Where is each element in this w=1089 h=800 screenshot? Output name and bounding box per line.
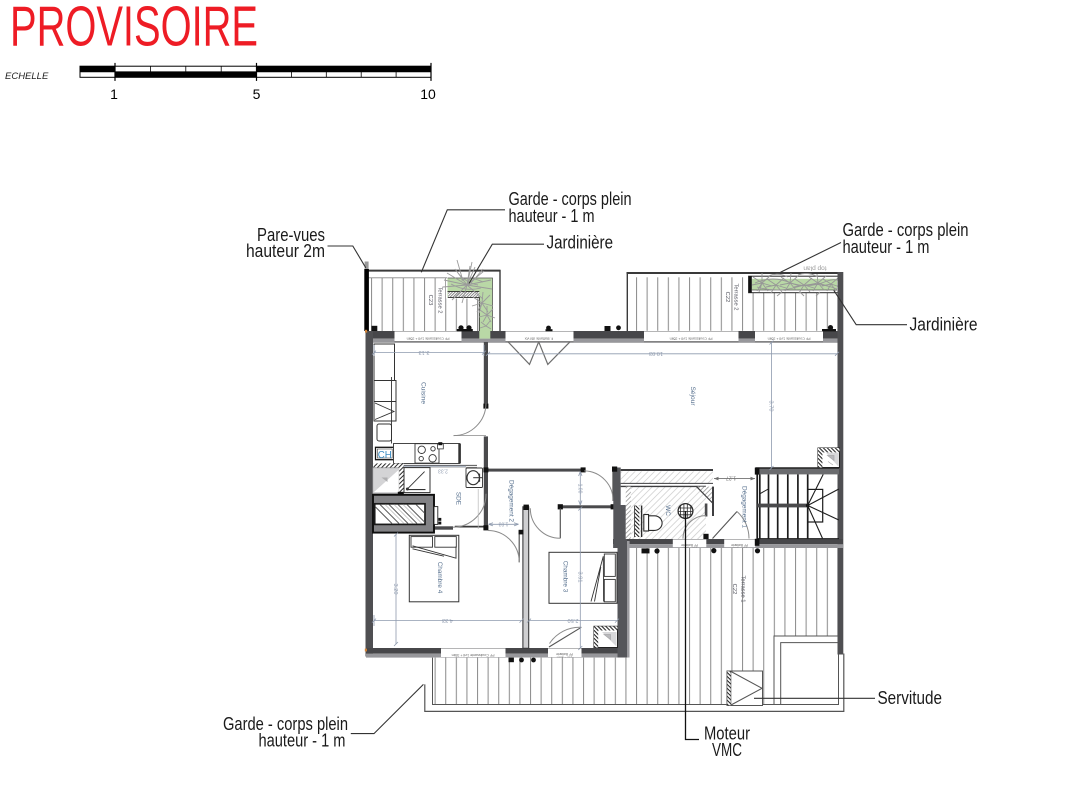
svg-text:ECHELLE: ECHELLE [5, 71, 49, 82]
svg-text:10: 10 [420, 86, 436, 102]
svg-text:C22: C22 [731, 584, 737, 595]
svg-text:Terrasse 2: Terrasse 2 [437, 286, 443, 313]
svg-text:WC: WC [664, 505, 671, 516]
svg-text:hauteur 2m: hauteur 2m [246, 241, 325, 261]
svg-text:3.91: 3.91 [576, 572, 582, 583]
svg-text:Terrasse 2: Terrasse 2 [733, 283, 739, 310]
svg-text:C23: C23 [427, 295, 433, 306]
svg-text:PF Battante: PF Battante [681, 543, 698, 547]
svg-text:1.27: 1.27 [726, 474, 736, 480]
svg-text:3.13: 3.13 [419, 349, 430, 355]
svg-text:PROVISOIRE: PROVISOIRE [10, 0, 258, 59]
svg-text:2.33: 2.33 [438, 468, 448, 474]
svg-text:2.50: 2.50 [568, 617, 579, 623]
svg-text:hauteur - 1 m: hauteur - 1 m [509, 206, 595, 226]
svg-text:Séjour: Séjour [689, 386, 696, 406]
svg-text:Chambre 3: Chambre 3 [562, 561, 569, 593]
svg-text:VMC: VMC [712, 740, 742, 760]
svg-text:CH: CH [378, 449, 392, 461]
svg-text:PF Battante: PF Battante [731, 543, 748, 547]
svg-text:hauteur - 1 m: hauteur - 1 m [843, 237, 930, 257]
svg-text:PF Coulissante 1vtl + 35lm: PF Coulissante 1vtl + 35lm [768, 337, 811, 341]
svg-text:Jardinière: Jardinière [547, 232, 614, 252]
svg-text:hauteur - 1 m: hauteur - 1 m [259, 731, 346, 751]
svg-text:Dégagement 1: Dégagement 1 [741, 486, 748, 528]
svg-text:3.20: 3.20 [392, 584, 398, 595]
svg-text:top plan: top plan [803, 265, 827, 272]
svg-text:Cuisine: Cuisine [420, 382, 427, 404]
svg-text:4.33: 4.33 [442, 617, 453, 623]
svg-text:1.00: 1.00 [577, 484, 583, 494]
svg-text:3.70: 3.70 [768, 401, 774, 412]
svg-text:Jardinière: Jardinière [910, 314, 978, 334]
svg-text:C22: C22 [724, 292, 730, 303]
svg-text:5: 5 [253, 86, 261, 102]
svg-text:Servitude: Servitude [878, 688, 943, 708]
svg-text:PF Coulissante 1vtl + 35lm: PF Coulissante 1vtl + 35lm [452, 653, 495, 657]
svg-text:Chambre 4: Chambre 4 [436, 562, 443, 594]
svg-text:PF Battante: PF Battante [556, 652, 573, 656]
svg-text:PF Coulissante 1vtl + 35lm: PF Coulissante 1vtl + 35lm [407, 337, 450, 341]
svg-text:10.03: 10.03 [649, 350, 663, 356]
svg-text:1: 1 [110, 86, 118, 102]
svg-text:SDE: SDE [455, 492, 462, 505]
svg-text:F. Battante dbl vtx: F. Battante dbl vtx [525, 337, 554, 341]
svg-text:PF Coulissante 1vtl + 35lm: PF Coulissante 1vtl + 35lm [670, 337, 713, 341]
svg-text:1.03: 1.03 [498, 521, 508, 527]
svg-text:Terrasse 1: Terrasse 1 [740, 575, 746, 602]
svg-text:Dégagement 2: Dégagement 2 [508, 480, 515, 522]
